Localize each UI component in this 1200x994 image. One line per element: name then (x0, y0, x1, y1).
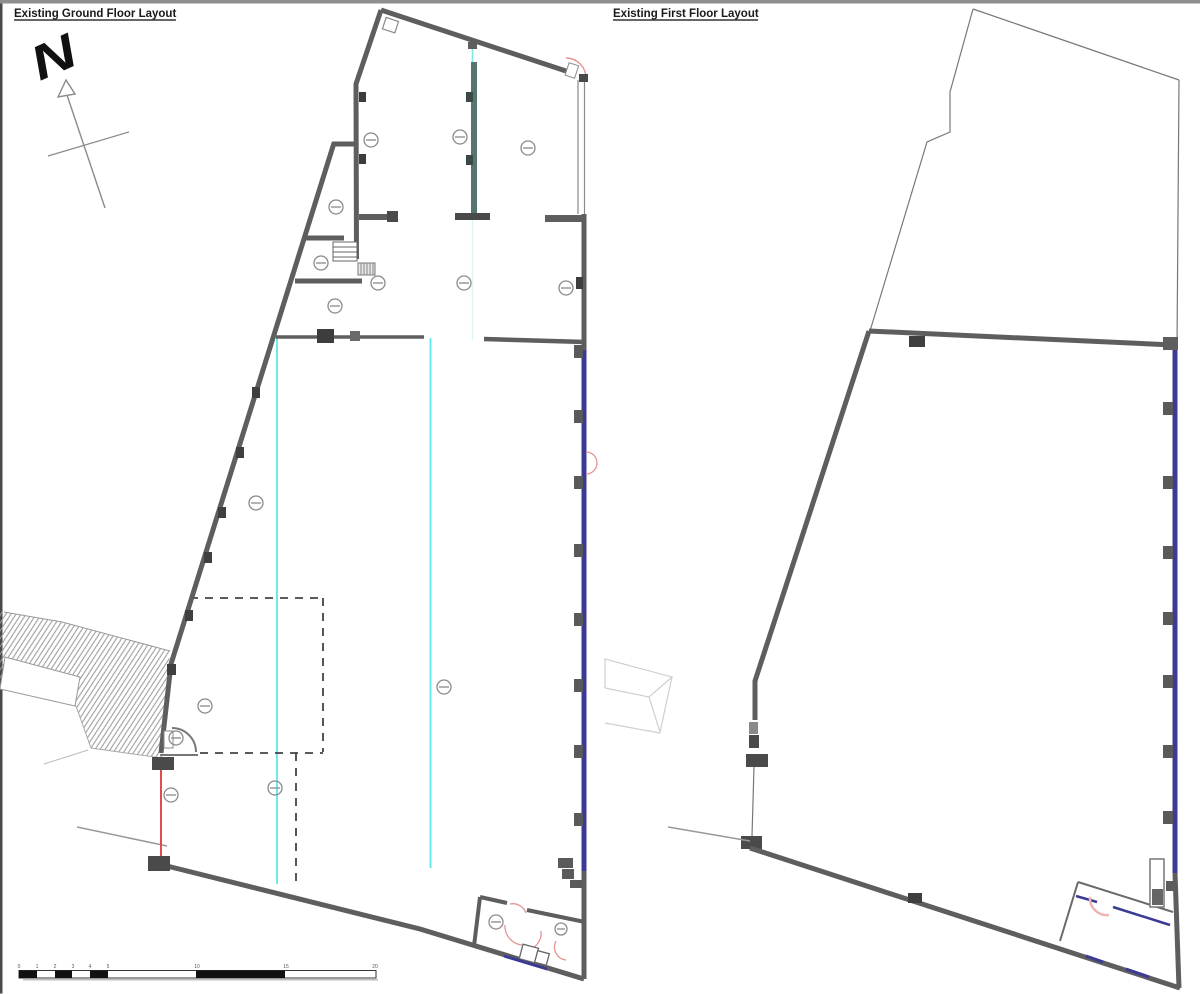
svg-text:10: 10 (194, 964, 200, 970)
svg-text:15: 15 (283, 964, 289, 970)
svg-text:1: 1 (36, 964, 39, 970)
svg-text:20: 20 (372, 964, 378, 970)
svg-text:Existing First Floor Layout: Existing First Floor Layout (613, 8, 759, 20)
svg-text:2: 2 (54, 964, 57, 970)
svg-text:0: 0 (18, 964, 21, 970)
svg-text:3: 3 (72, 964, 75, 970)
svg-text:Existing Ground Floor Layout: Existing Ground Floor Layout (14, 8, 176, 20)
svg-text:5: 5 (107, 964, 110, 970)
svg-text:4: 4 (89, 964, 92, 970)
